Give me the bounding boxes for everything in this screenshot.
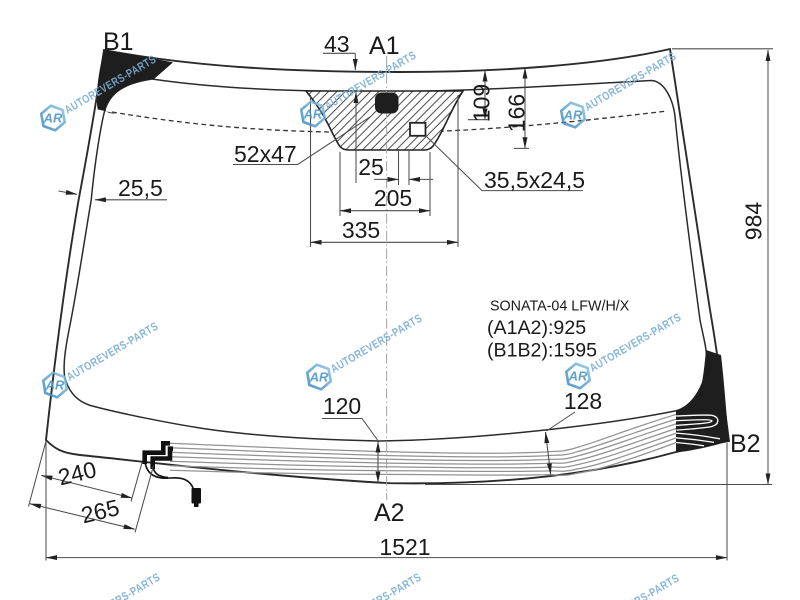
svg-text:109: 109 (469, 84, 495, 122)
svg-text:120: 120 (323, 393, 361, 419)
svg-text:984: 984 (741, 202, 767, 241)
svg-text:B2: B2 (730, 430, 761, 458)
svg-text:35,5x24,5: 35,5x24,5 (484, 167, 585, 193)
svg-text:43: 43 (324, 31, 350, 57)
svg-text:25,5: 25,5 (118, 175, 163, 201)
svg-text:25: 25 (358, 154, 384, 180)
svg-text:A2: A2 (374, 499, 405, 527)
svg-text:(A1A2):925: (A1A2):925 (487, 317, 586, 339)
svg-text:A1: A1 (369, 32, 400, 60)
svg-text:335: 335 (342, 217, 380, 243)
svg-text:52x47: 52x47 (234, 141, 297, 167)
svg-text:(B1B2):1595: (B1B2):1595 (487, 340, 597, 362)
svg-text:205: 205 (374, 185, 412, 211)
svg-text:128: 128 (564, 388, 602, 414)
svg-text:SONATA-04 LFW/H/X: SONATA-04 LFW/H/X (490, 299, 630, 315)
svg-text:1521: 1521 (379, 534, 430, 560)
svg-text:B1: B1 (103, 28, 134, 56)
svg-text:166: 166 (504, 94, 530, 132)
